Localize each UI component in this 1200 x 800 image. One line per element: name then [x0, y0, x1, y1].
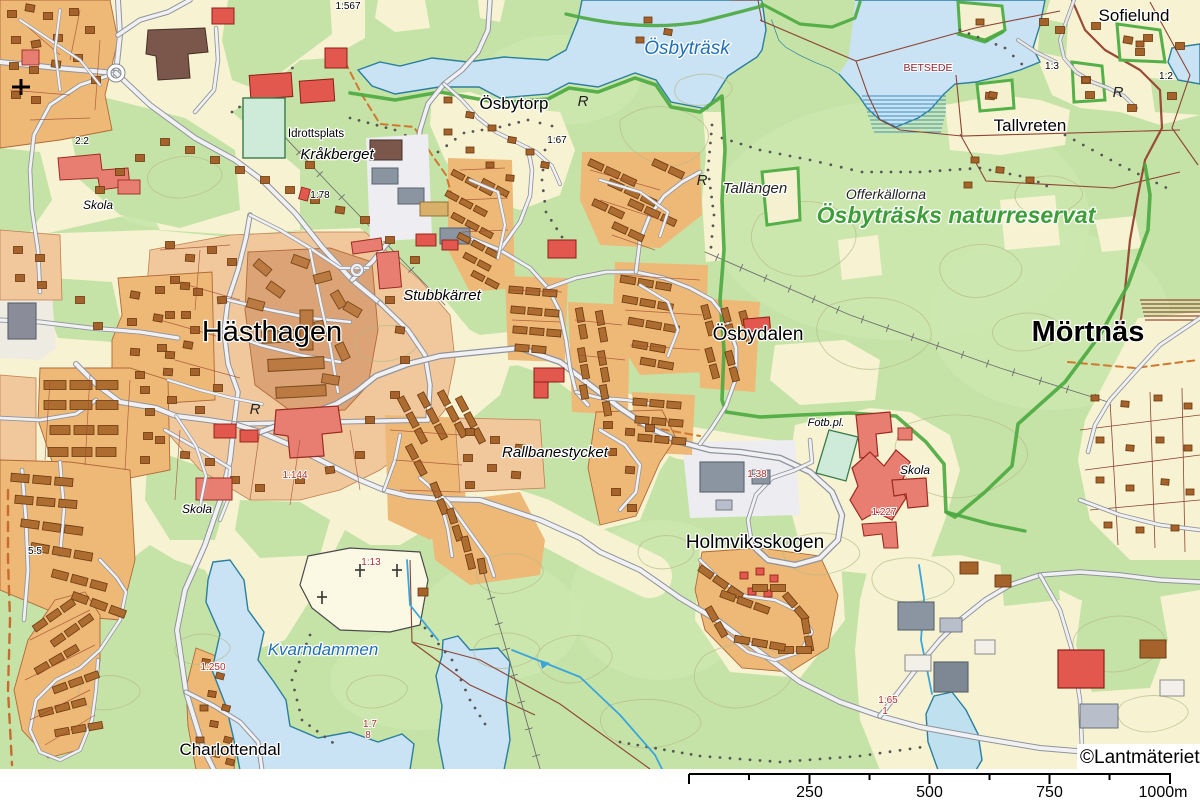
svg-text:1:13: 1:13 [361, 557, 381, 568]
svg-text:R: R [578, 93, 589, 110]
svg-text:Stubbkärret: Stubbkärret [403, 287, 481, 304]
svg-text:1:567: 1:567 [335, 1, 360, 12]
svg-text:Tallvreten: Tallvreten [994, 116, 1067, 135]
svg-text:Skola: Skola [182, 502, 212, 516]
svg-text:1:65: 1:65 [878, 695, 898, 706]
svg-text:1: 1 [882, 706, 888, 717]
svg-text:©Lantmäteriet,: ©Lantmäteriet, [1080, 747, 1200, 768]
svg-text:Hästhagen: Hästhagen [202, 316, 342, 348]
svg-text:Sofielund: Sofielund [1099, 6, 1170, 25]
svg-text:R: R [1113, 84, 1124, 101]
svg-text:1:78: 1:78 [310, 190, 330, 201]
svg-text:1:38: 1:38 [747, 469, 767, 480]
svg-text:Ösbydalen: Ösbydalen [713, 324, 804, 345]
svg-text:Fotb.pl.: Fotb.pl. [808, 417, 845, 429]
svg-text:1:7: 1:7 [363, 719, 377, 730]
svg-text:1:67: 1:67 [547, 135, 567, 146]
svg-text:BETSEDE: BETSEDE [903, 62, 952, 74]
svg-text:Skola: Skola [900, 463, 930, 477]
svg-text:1:3: 1:3 [1045, 61, 1059, 72]
svg-text:Holmviksskogen: Holmviksskogen [686, 532, 824, 553]
svg-text:2:2: 2:2 [75, 136, 89, 147]
svg-text:1:2: 1:2 [1159, 71, 1173, 82]
svg-text:Ösbytorp: Ösbytorp [480, 94, 549, 113]
svg-text:Charlottendal: Charlottendal [179, 740, 280, 759]
svg-text:5:5: 5:5 [28, 546, 42, 557]
svg-text:1000m: 1000m [1139, 784, 1188, 800]
svg-text:1:250: 1:250 [200, 662, 225, 673]
svg-text:Tallängen: Tallängen [723, 180, 788, 197]
svg-text:Kvarndammen: Kvarndammen [268, 640, 379, 659]
svg-text:Mörtnäs: Mörtnäs [1032, 316, 1145, 348]
svg-text:Ösbyträsks naturreservat: Ösbyträsks naturreservat [817, 202, 1097, 228]
svg-text:R: R [250, 401, 261, 418]
svg-text:Idrottsplats: Idrottsplats [288, 128, 344, 140]
svg-text:Ösbyträsk: Ösbyträsk [644, 38, 731, 59]
svg-text:8: 8 [365, 730, 371, 741]
svg-text:250: 250 [796, 784, 823, 800]
svg-text:1:227: 1:227 [871, 507, 896, 518]
svg-text:Skola: Skola [83, 198, 113, 212]
svg-text:Offerkällorna: Offerkällorna [846, 186, 926, 202]
svg-text:R: R [697, 172, 708, 189]
svg-text:Kråkberget: Kråkberget [300, 146, 374, 163]
svg-text:500: 500 [916, 784, 943, 800]
svg-text:750: 750 [1036, 784, 1063, 800]
svg-text:Rallbanestycket: Rallbanestycket [502, 444, 609, 461]
svg-text:1:144: 1:144 [282, 470, 307, 481]
